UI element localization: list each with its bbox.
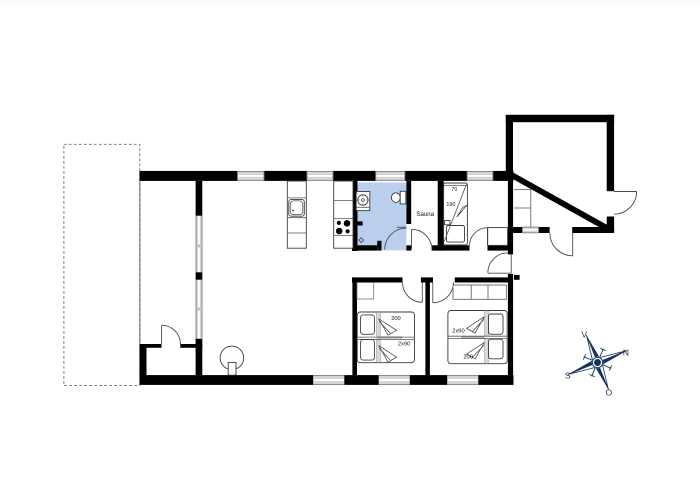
svg-text:N: N [623, 347, 629, 357]
svg-text:200: 200 [463, 355, 473, 361]
svg-text:2x90: 2x90 [452, 328, 464, 334]
svg-text:S: S [565, 371, 571, 381]
svg-text:70: 70 [451, 187, 457, 193]
svg-text:200: 200 [391, 316, 401, 322]
svg-text:Sauna: Sauna [416, 211, 434, 218]
svg-text:2x90: 2x90 [398, 341, 410, 347]
svg-text:V: V [581, 329, 587, 339]
svg-text:O: O [605, 388, 612, 398]
svg-text:190: 190 [446, 202, 455, 208]
